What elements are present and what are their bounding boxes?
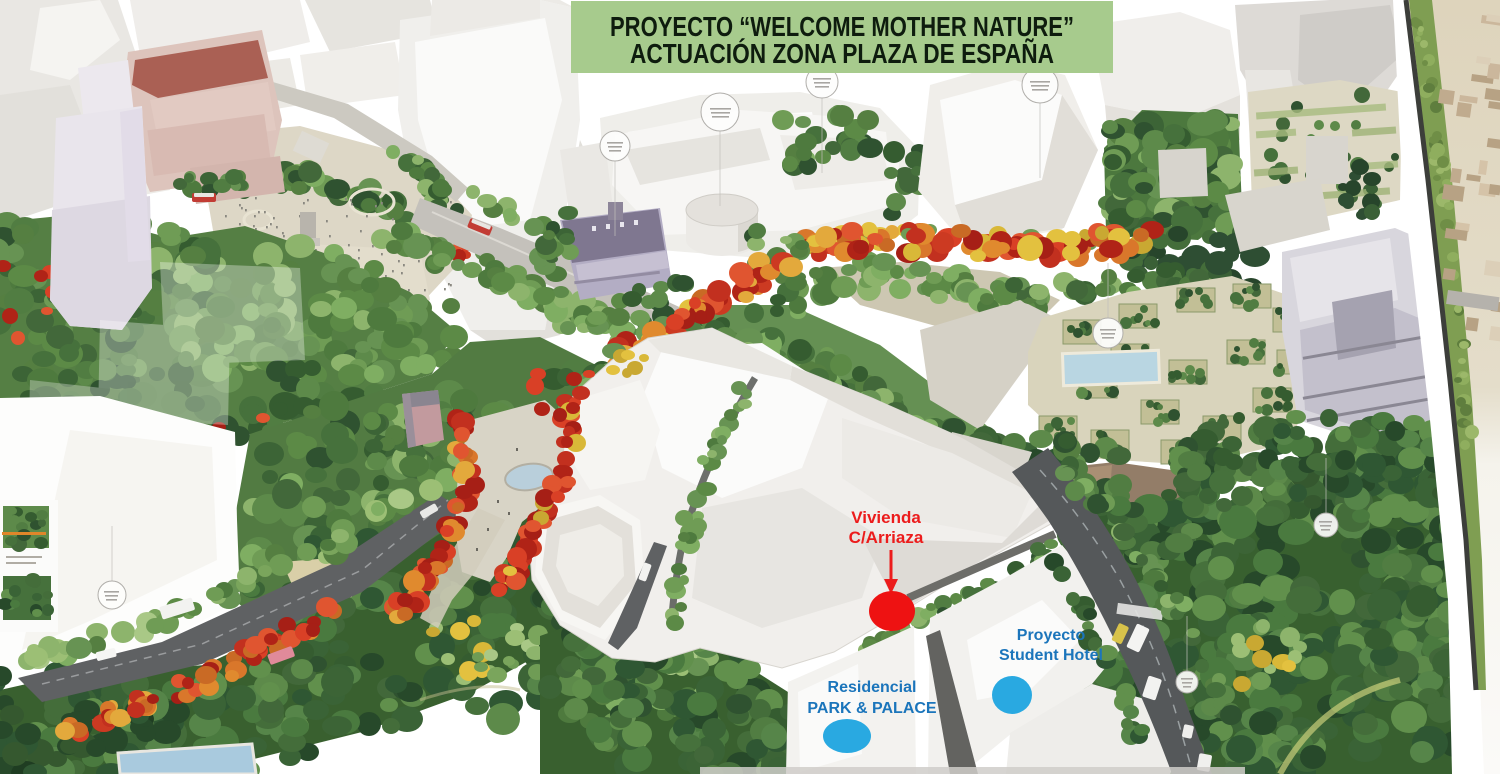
svg-text:ACTUACIÓN ZONA PLAZA DE ESPAÑA: ACTUACIÓN ZONA PLAZA DE ESPAÑA (630, 38, 1054, 69)
svg-text:Residencial: Residencial (828, 679, 917, 696)
svg-text:PARK & PALACE: PARK & PALACE (807, 700, 937, 717)
svg-text:Vivienda: Vivienda (851, 508, 921, 527)
svg-text:Proyecto: Proyecto (1017, 627, 1086, 644)
svg-text:Student Hotel: Student Hotel (999, 647, 1103, 664)
svg-text:C/Arriaza: C/Arriaza (849, 528, 924, 547)
